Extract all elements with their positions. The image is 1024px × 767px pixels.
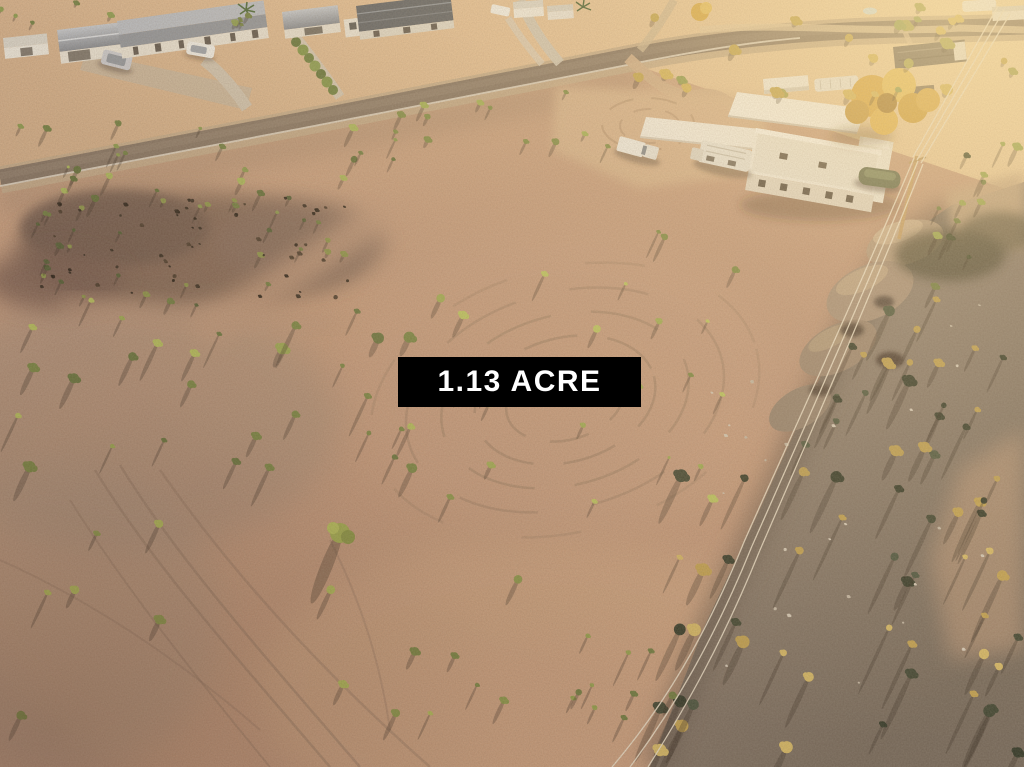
acreage-banner-text: 1.13 ACRE: [437, 365, 601, 399]
aerial-lot-photo: 1.13 ACRE: [0, 0, 1024, 767]
acreage-banner: 1.13 ACRE: [398, 357, 641, 407]
